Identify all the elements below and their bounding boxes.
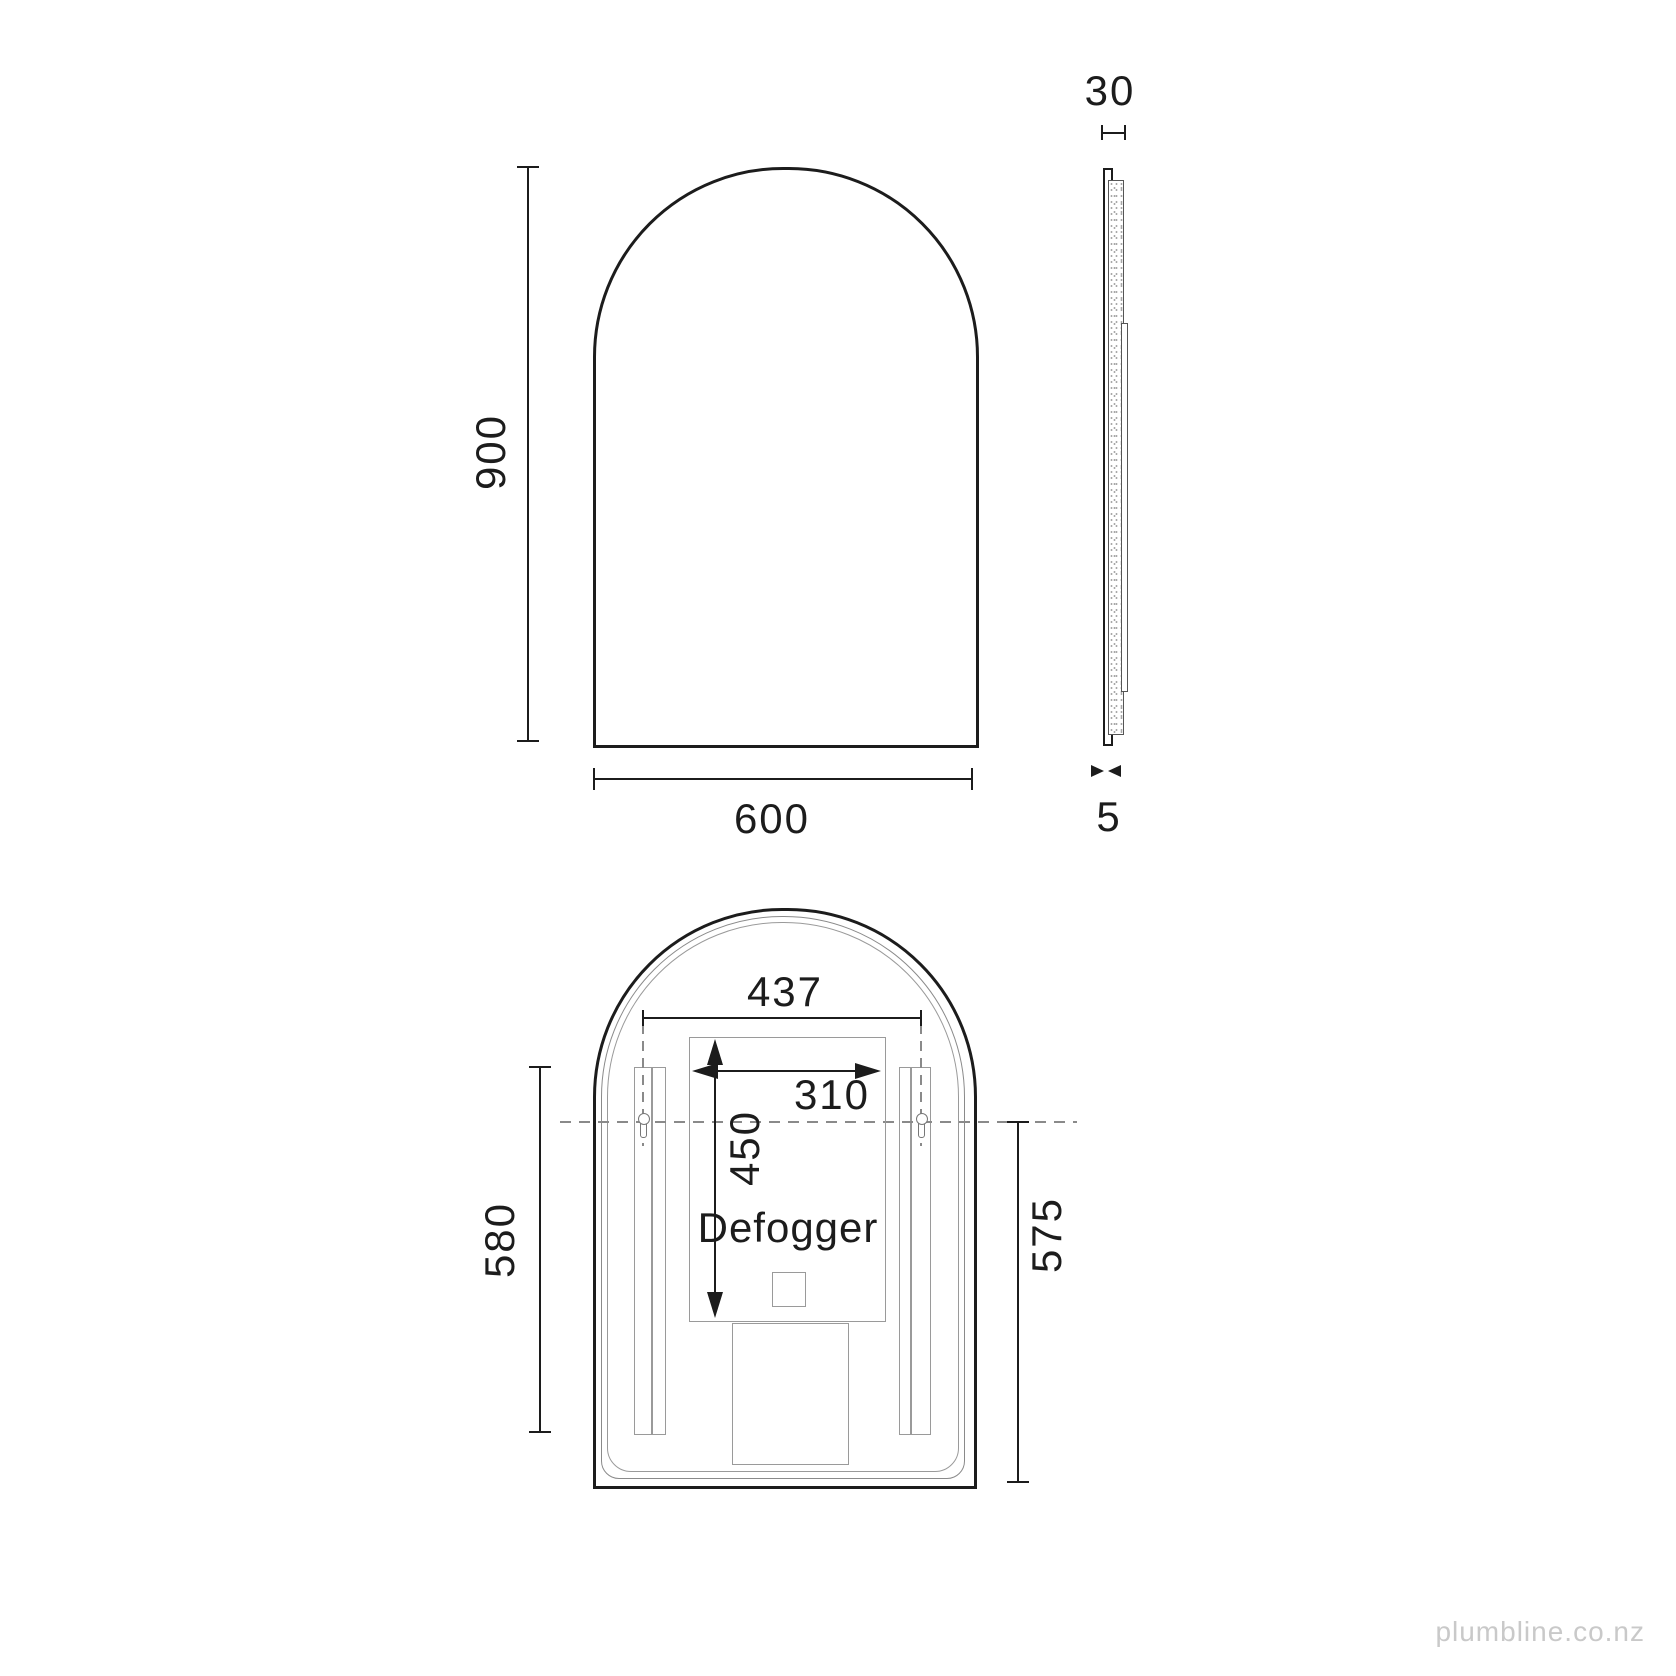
dim-450-shaft — [714, 1062, 716, 1294]
dim-437-line — [643, 1017, 922, 1019]
dim-310-arrow-left — [692, 1063, 718, 1079]
diagram-canvas: 900 600 30 5 — [0, 0, 1676, 1676]
dim-30-tick-right — [1124, 125, 1126, 140]
dim-437-tick-left — [642, 1010, 644, 1026]
dim-600-tick-right — [971, 768, 973, 790]
dim-450-label: 450 — [724, 1088, 766, 1208]
keyhole-left-circle — [638, 1113, 650, 1125]
dim-580-label: 580 — [479, 1180, 521, 1300]
dim-5-arrow-right — [1108, 765, 1121, 777]
dim-5-arrow-left — [1091, 765, 1104, 777]
dim-30-label: 30 — [1050, 70, 1170, 112]
keyhole-right-circle — [916, 1113, 928, 1125]
dim-600-tick-left — [593, 768, 595, 790]
dim-900-tick-bottom — [517, 740, 539, 742]
junction-box — [732, 1323, 849, 1465]
watermark-text: plumbline.co.nz — [1325, 1612, 1645, 1652]
dim-437-label: 437 — [725, 971, 845, 1013]
dim-900-label: 900 — [470, 392, 512, 512]
dim-580-tick-bottom — [529, 1431, 551, 1433]
sensor-square — [772, 1272, 806, 1307]
dim-575-tick-bottom — [1007, 1481, 1029, 1483]
dim-580-tick-top — [529, 1066, 551, 1068]
dim-310-label: 310 — [772, 1074, 892, 1116]
dim-450-arrow-top — [707, 1039, 723, 1065]
side-mounting-rail — [1121, 323, 1128, 692]
dim-600-label: 600 — [712, 798, 832, 840]
dim-900-line — [527, 168, 529, 741]
dim-580-line — [539, 1067, 541, 1433]
dim-575-line — [1017, 1122, 1019, 1483]
dim-5-label: 5 — [1049, 796, 1169, 838]
dim-600-line — [594, 778, 972, 780]
front-mirror-outline — [593, 167, 979, 748]
dim-437-tick-right — [920, 1010, 922, 1026]
dim-450-arrow-bottom — [707, 1292, 723, 1318]
dim-30-tick-left — [1101, 125, 1103, 140]
defogger-label: Defogger — [688, 1207, 888, 1249]
dim-30-line — [1103, 132, 1126, 134]
dim-575-label: 575 — [1026, 1175, 1068, 1295]
dim-575-tick-top — [1007, 1121, 1029, 1123]
dim-900-tick-top — [517, 166, 539, 168]
